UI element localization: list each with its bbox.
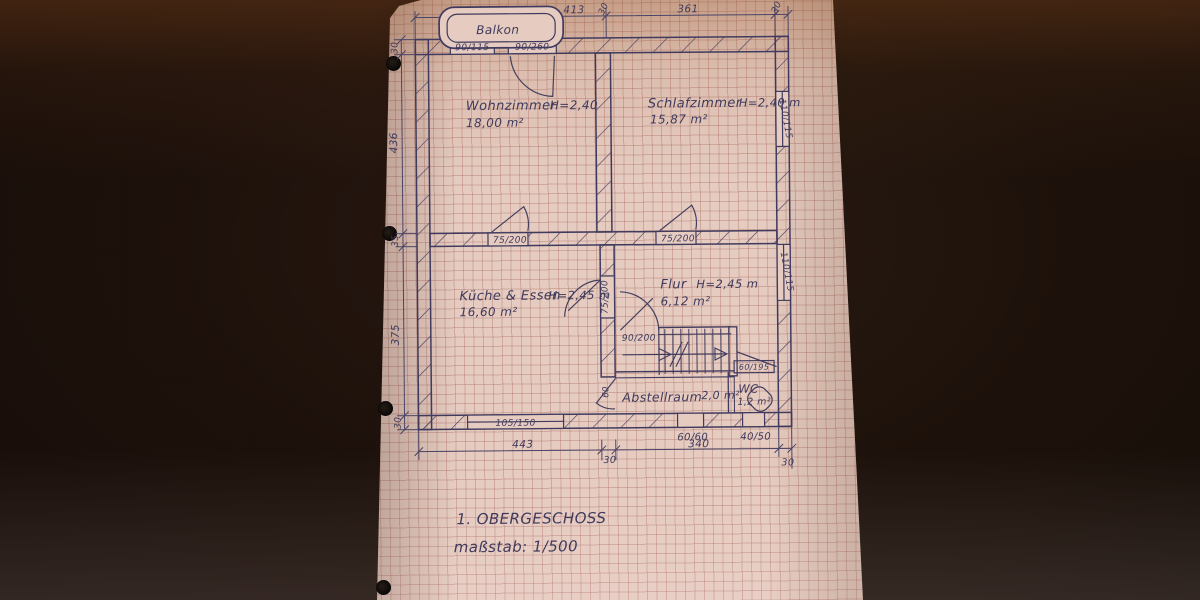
kueche-area: 16,60 m² [460, 305, 518, 320]
stair-direction-line [623, 354, 725, 355]
wohnzimmer-door-label: 75/200 [493, 236, 527, 246]
dim-bottom-30b: 30 [781, 457, 794, 468]
sheet-title: 1. OBERGESCHOSS maßstab: 1/500 [453, 509, 606, 556]
dim-bottom-340: 340 [688, 438, 709, 450]
kueche-window-label: 105/150 [495, 419, 535, 429]
flur-area: 6,12 m² [660, 294, 710, 308]
abstellraum-area: 2,0 m² [701, 389, 740, 402]
kueche-name: Küche & Essen [459, 288, 561, 304]
dim-left-436: 436 [388, 132, 400, 153]
abstell-door-label: 60 [601, 386, 611, 398]
dim-left-30a: 30 [390, 42, 400, 54]
balcony-label: Balkon [476, 23, 519, 37]
wall-left [415, 39, 431, 429]
photo-background: Balkon Wohnzimmer H=2,40 18,00 m² Schlaf… [0, 0, 1200, 600]
floorplan-drawing: Balkon Wohnzimmer H=2,40 18,00 m² Schlaf… [0, 0, 1200, 600]
dim-left-375: 375 [390, 324, 402, 345]
flur-name: Flur [660, 277, 688, 292]
title-scale: maßstab: 1/500 [454, 537, 578, 556]
wc-area: 1,2 m² [737, 397, 771, 408]
abstellraum-name: Abstellraum [621, 389, 702, 405]
wohnzimmer-name: Wohnzimmer [466, 98, 558, 114]
wohnzimmer-height: H=2,40 [550, 98, 598, 112]
kueche-door-label: 75/200 [600, 280, 610, 314]
dim-bottom-30a: 30 [603, 455, 616, 466]
schlafzimmer-door-label: 75/200 [661, 234, 695, 244]
dim-top-30b: 30 [770, 0, 784, 15]
flur-height: H=2,45 m [696, 277, 758, 292]
wall-middle-horizontal [430, 230, 777, 246]
wall-middle-vertical-upper [595, 53, 612, 232]
labels: Balkon Wohnzimmer H=2,40 18,00 m² Schlaf… [457, 20, 803, 410]
wc-name: WC [738, 382, 758, 396]
dim-left-30b: 30 [394, 417, 404, 429]
wc-window-label: 40/50 [740, 432, 771, 443]
dim-left-35: 35 [391, 235, 401, 247]
wohnzimmer-area: 18,00 m² [466, 116, 524, 131]
title-floor: 1. OBERGESCHOSS [456, 509, 606, 528]
schlafzimmer-height: H=2,40 m [739, 95, 801, 110]
wc-door-label: 60/195 [739, 363, 770, 372]
balcony-door-arc [510, 56, 552, 96]
stair-door-label: 90/200 [622, 334, 656, 344]
dim-top-361: 361 [677, 3, 698, 15]
wohnzimmer-door-leaf [492, 207, 524, 232]
schlafzimmer-area: 15,87 m² [650, 112, 708, 127]
dim-bottom-443: 443 [512, 439, 533, 451]
balcony-window-label: 90/115 [455, 43, 489, 53]
schlafzimmer-name: Schlafzimmer [648, 96, 743, 112]
dim-top-30a: 30 [597, 1, 611, 16]
balcony-door-label: 90/260 [515, 42, 549, 52]
dim-top-413: 413 [563, 4, 584, 16]
schlafzimmer-door-leaf [660, 205, 692, 230]
